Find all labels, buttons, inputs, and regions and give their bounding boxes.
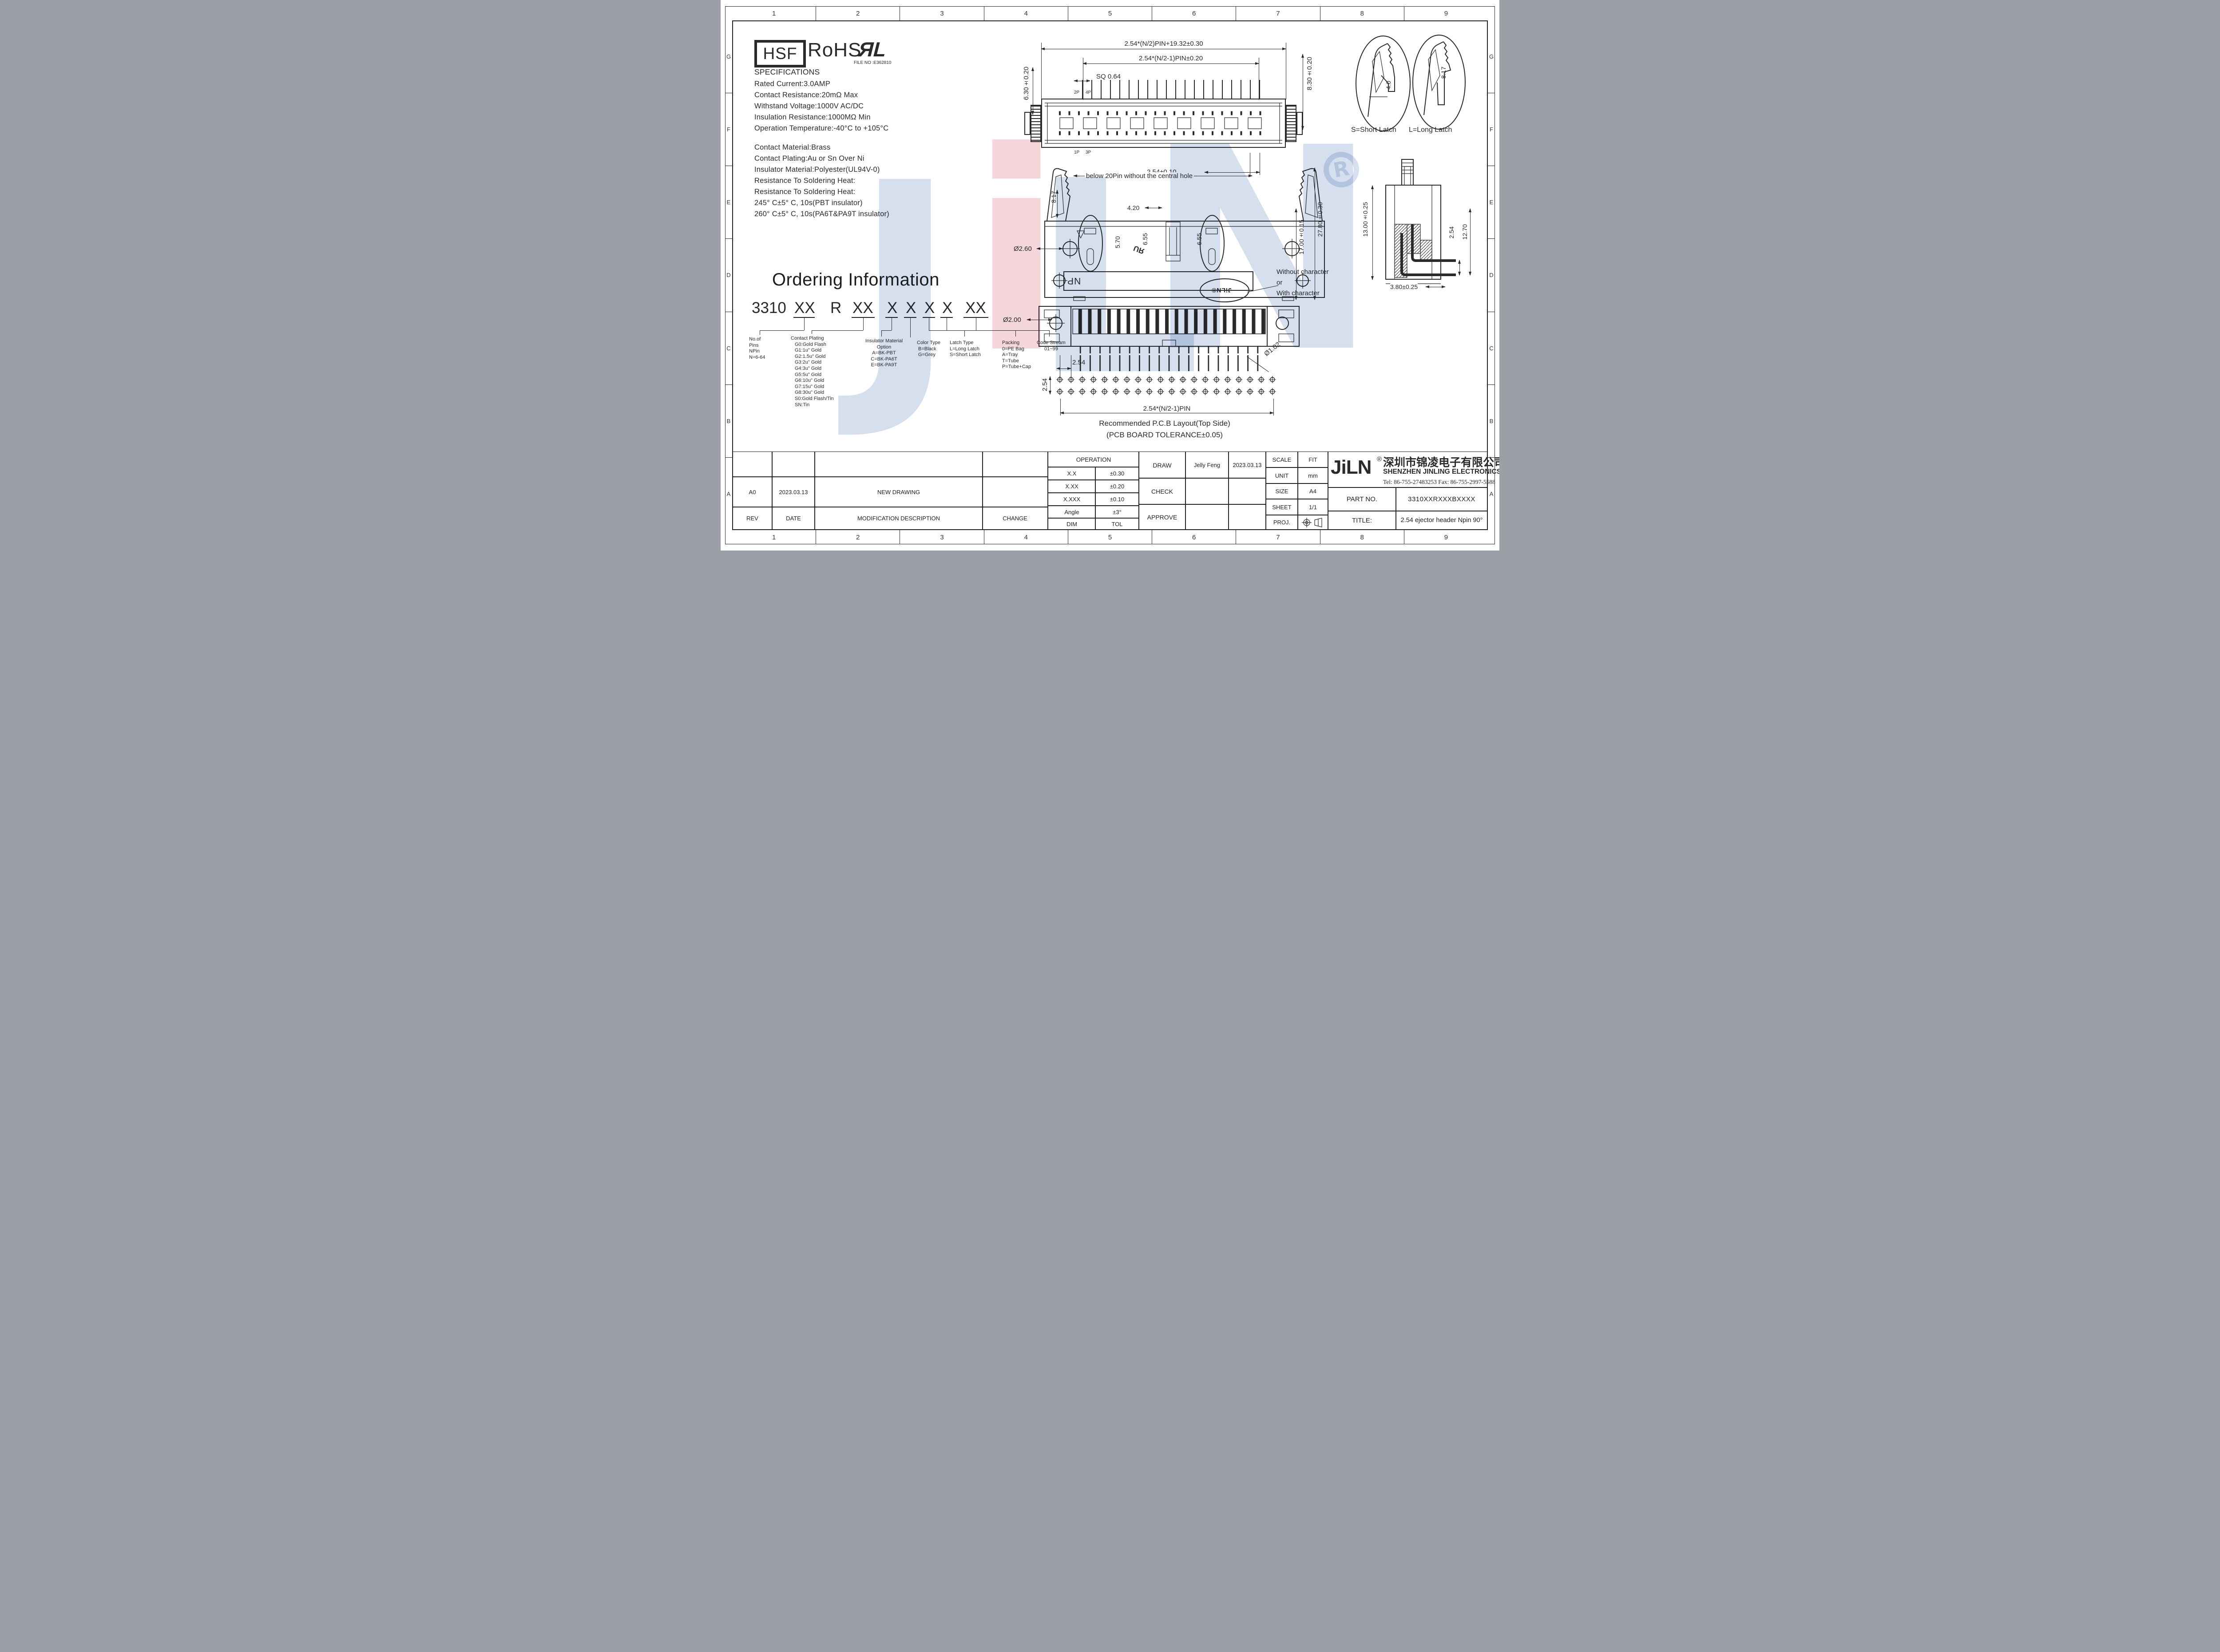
- company-tel: Tel: 86-755-27483253 Fax: 86-755-2997-55…: [1383, 479, 1495, 486]
- front-stamp: JiLN®: [1211, 287, 1232, 294]
- dim-overall: 2.54*(N/2)PIN+19.32±0.30: [1122, 40, 1205, 48]
- pcb-layout: [1054, 374, 1276, 400]
- tol-val-3: ±0.10: [1095, 492, 1139, 506]
- title-value: 2.54 ejector header Npin 90°: [1395, 511, 1488, 530]
- code-part: X: [906, 299, 916, 317]
- rev-empty-4: [982, 452, 1048, 477]
- zone-label: G: [1488, 20, 1495, 93]
- tol-val-5: TOL: [1095, 518, 1139, 530]
- front-dim-655b: 6.55: [1196, 233, 1203, 245]
- rev-desc-label: MODIFICATION DESCRIPTION: [814, 507, 983, 530]
- pin-label-1p: 1P: [1074, 150, 1079, 155]
- front-dim-420: 4.20: [1127, 204, 1139, 211]
- spec-line: Rated Current:3.0AMP: [754, 79, 830, 90]
- code-part: X: [942, 299, 952, 317]
- front-dim-2780: 27.80±0.30: [1316, 202, 1324, 237]
- ordering-plating-label: Contact Plating G0:Gold Flash G1:1u" Gol…: [791, 336, 834, 408]
- pcb-dim-254v: 2.54: [1041, 378, 1049, 391]
- zone-label: F: [1488, 93, 1495, 166]
- material-line: Contact Material:Brass: [754, 142, 830, 153]
- zone-label: 6: [1152, 6, 1236, 20]
- top-view-right-cap: [1296, 112, 1303, 135]
- zone-label: B: [1488, 384, 1495, 457]
- material-line: Resistance To Soldering Heat:: [754, 175, 855, 186]
- zone-label: E: [1488, 166, 1495, 238]
- sheet-value: 1/1: [1297, 499, 1328, 515]
- check-name: [1185, 478, 1229, 505]
- ordering-insulator-label: Insulator Material Option A=BK-PBT C=BK-…: [859, 338, 909, 368]
- ul-file-no: FILE NO :E362810: [854, 60, 892, 65]
- zone-label: D: [1488, 238, 1495, 311]
- side-dim-380: 3.80±0.25: [1390, 283, 1418, 290]
- code-part: X: [887, 299, 897, 317]
- zone-label: 8: [1320, 6, 1404, 20]
- side-dim-1270: 12.70: [1461, 224, 1468, 240]
- short-latch-detail: [1355, 35, 1411, 132]
- sheet-label: SHEET: [1265, 499, 1298, 515]
- proj-value: [1297, 515, 1328, 530]
- zone-label: E: [725, 166, 732, 238]
- zone-label: 9: [1404, 6, 1488, 20]
- pcb-caption-2: (PCB BOARD TOLERANCE±0.05): [1106, 431, 1223, 440]
- approve-name: [1185, 504, 1229, 530]
- code-part: 3310: [752, 299, 786, 317]
- tol-dim-2: X.XX: [1048, 479, 1096, 493]
- pin-label-2p: 2P: [1074, 90, 1079, 95]
- unit-label: UNIT: [1265, 467, 1298, 484]
- approve-date: [1228, 504, 1266, 530]
- material-line: Contact Plating:Au or Sn Over Ni: [754, 153, 864, 164]
- zone-label: 7: [1236, 530, 1320, 544]
- tol-val-4: ±3°: [1095, 505, 1139, 519]
- company-name-en: SHENZHEN JINLING ELECTRONICS CO.,LTD: [1383, 468, 1499, 476]
- ordering-title: Ordering Information: [772, 270, 940, 290]
- tol-val-2: ±0.20: [1095, 479, 1139, 493]
- unit-value: mm: [1297, 467, 1328, 484]
- char-note-3: With character: [1276, 289, 1320, 297]
- material-line: Resistance To Soldering Heat:: [754, 186, 855, 198]
- rev-label: REV: [732, 507, 773, 530]
- side-view: [1373, 158, 1462, 291]
- zone-label: 2: [816, 530, 900, 544]
- first-angle-projection-icon: [1301, 517, 1324, 528]
- zone-label: F: [725, 93, 732, 166]
- zone-label: G: [725, 20, 732, 93]
- zone-label: 1: [732, 530, 816, 544]
- zone-label: 4: [984, 6, 1068, 20]
- code-part: XX: [794, 299, 815, 317]
- rev-empty-3: [814, 452, 983, 477]
- long-latch-detail: [1411, 34, 1467, 131]
- top-view-pins: [1082, 80, 1260, 99]
- part-no-label: PART NO.: [1328, 487, 1396, 511]
- check-label: CHECK: [1138, 478, 1186, 505]
- side-dim-254: 2.54: [1448, 226, 1455, 238]
- specifications-title: SPECIFICATIONS: [754, 67, 820, 78]
- zone-columns-bottom: 1 2 3 4 5 6 7 8 9: [732, 530, 1488, 544]
- zone-label: 3: [900, 6, 983, 20]
- ordering-color-label: Color Type B=Black G=Grey: [917, 340, 940, 358]
- rev-change-empty: [982, 476, 1048, 507]
- company-logo-reg: ®: [1377, 456, 1382, 463]
- pin-label-3p: 3P: [1086, 150, 1091, 155]
- scale-label: SCALE: [1265, 452, 1298, 468]
- short-latch-label: S=Short Latch: [1351, 126, 1396, 134]
- tol-dim-5: DIM: [1048, 518, 1096, 530]
- tol-val-1: ±0.30: [1095, 467, 1139, 480]
- size-label: SIZE: [1265, 483, 1298, 499]
- rev-desc-value: NEW DRAWING: [814, 476, 983, 507]
- rohs-logo: RoHS: [808, 39, 861, 61]
- pin-label-4p: 4P: [1086, 90, 1091, 95]
- zone-label: A: [725, 457, 732, 530]
- top-view-body: [1041, 99, 1286, 148]
- bottom-dim-200: Ø2.00: [1003, 316, 1021, 324]
- top-view-right-ear: [1286, 105, 1296, 142]
- zone-label: 1: [732, 6, 816, 20]
- zone-label: 7: [1236, 6, 1320, 20]
- zone-label: 2: [816, 6, 900, 20]
- spec-line: Withstand Voltage:1000V AC/DC: [754, 101, 864, 112]
- check-date: [1228, 478, 1266, 505]
- code-part: X: [924, 299, 935, 317]
- code-part: XX: [965, 299, 986, 317]
- proj-label: PROJ.: [1265, 515, 1298, 530]
- side-dim-1300: 13.00±0.25: [1362, 202, 1369, 237]
- code-part: XX: [852, 299, 873, 317]
- code-part: R: [830, 299, 841, 317]
- dim-height-right: 8.30±0.20: [1306, 57, 1313, 90]
- zone-label: 3: [900, 530, 983, 544]
- draw-name: Jelly Feng: [1185, 452, 1229, 479]
- rev-change-label: CHANGE: [982, 507, 1048, 530]
- front-dim-1700: 17.00±0.15: [1298, 220, 1305, 254]
- rev-empty-1: [732, 452, 773, 477]
- size-value: A4: [1297, 483, 1328, 499]
- zone-columns-top: 1 2 3 4 5 6 7 8 9: [732, 6, 1488, 20]
- short-latch-dim: 4.0: [1385, 81, 1392, 89]
- zone-label: D: [725, 238, 732, 311]
- tol-dim-4: Angle: [1048, 505, 1096, 519]
- top-view-left-ear: [1031, 105, 1041, 142]
- spec-line: Operation Temperature:-40°C to +105°C: [754, 123, 888, 134]
- rev-value: A0: [732, 476, 773, 507]
- dim-height-left: 6.30±0.20: [1023, 67, 1030, 100]
- zone-label: C: [1488, 312, 1495, 384]
- scale-value: FIT: [1297, 452, 1328, 468]
- top-view-left-cap: [1024, 112, 1031, 135]
- tol-header: OPERATION: [1048, 452, 1139, 467]
- ordering-latch-label: Latch Type L=Long Latch S=Short Latch: [950, 340, 981, 358]
- zone-label: 6: [1152, 530, 1236, 544]
- ordering-pins-label: No.ofPins NPinN=6-64: [749, 337, 765, 361]
- ordering-packing-label: Packing 0=PE Bag A=Tray T=Tube P=Tube+Ca…: [1002, 340, 1031, 370]
- long-latch-label: L=Long Latch: [1409, 126, 1452, 134]
- pcb-dim-254h: 2.54: [1072, 359, 1085, 366]
- zone-label: 9: [1404, 530, 1488, 544]
- zone-label: B: [725, 384, 732, 457]
- pcb-dim-row: 2.54*(N/2-1)PIN: [1141, 405, 1193, 412]
- draw-label: DRAW: [1138, 452, 1186, 479]
- zone-rows-left: G F E D C B A: [725, 20, 732, 530]
- material-line: 245° C±5° C, 10s(PBT insulator): [754, 198, 863, 209]
- zone-label: C: [725, 312, 732, 384]
- material-line: Insulator Material:Polyester(UL94V-0): [754, 164, 880, 175]
- hsf-logo: HSF: [754, 40, 806, 67]
- material-line: 260° C±5° C, 10s(PA6T&PA9T insulator): [754, 209, 889, 220]
- spec-line: Insulation Resistance:1000MΩ Min: [754, 112, 871, 123]
- spec-line: Contact Resistance:20mΩ Max: [754, 90, 858, 101]
- drawing-sheet: 1 2 3 4 5 6 7 8 9 1 2 3 4 5 6 7 8 9 G F …: [721, 0, 1499, 551]
- company-name-cn: 深圳市锦凌电子有限公司: [1383, 454, 1499, 470]
- char-note-2: or: [1276, 279, 1282, 286]
- rev-empty-2: [772, 452, 815, 477]
- zone-label: 8: [1320, 530, 1404, 544]
- dim-sq: SQ 0.64: [1096, 73, 1121, 80]
- part-no-value: 3310XXRXXXBXXXX: [1395, 487, 1488, 511]
- rev-date-value: 2023.03.13: [772, 476, 815, 507]
- front-dim-570: 5.70: [1114, 236, 1121, 248]
- long-latch-dim: 8.17: [1440, 67, 1447, 79]
- front-dim-655a: 6.55: [1142, 233, 1149, 245]
- approve-label: APPROVE: [1138, 504, 1186, 530]
- front-dim-260: Ø2.60: [1014, 245, 1032, 253]
- zone-label: 4: [984, 530, 1068, 544]
- front-np-text: NP: [1067, 275, 1081, 286]
- rev-date-label: DATE: [772, 507, 815, 530]
- draw-date: 2023.03.13: [1228, 452, 1266, 479]
- zone-label: 5: [1068, 6, 1152, 20]
- company-logo: JiLN: [1331, 456, 1371, 479]
- zone-label: 5: [1068, 530, 1152, 544]
- title-label: TITLE:: [1328, 511, 1396, 530]
- tol-dim-3: X.XXX: [1048, 492, 1096, 506]
- pcb-caption-1: Recommended P.C.B Layout(Top Side): [1099, 419, 1230, 428]
- front-view: [1038, 164, 1331, 306]
- tol-dim-1: X.X: [1048, 467, 1096, 480]
- char-note-1: Without character: [1276, 268, 1329, 276]
- front-note: below 20Pin without the central hole: [1085, 172, 1194, 180]
- dim-span: 2.54*(N/2-1)PIN±0.20: [1137, 55, 1205, 62]
